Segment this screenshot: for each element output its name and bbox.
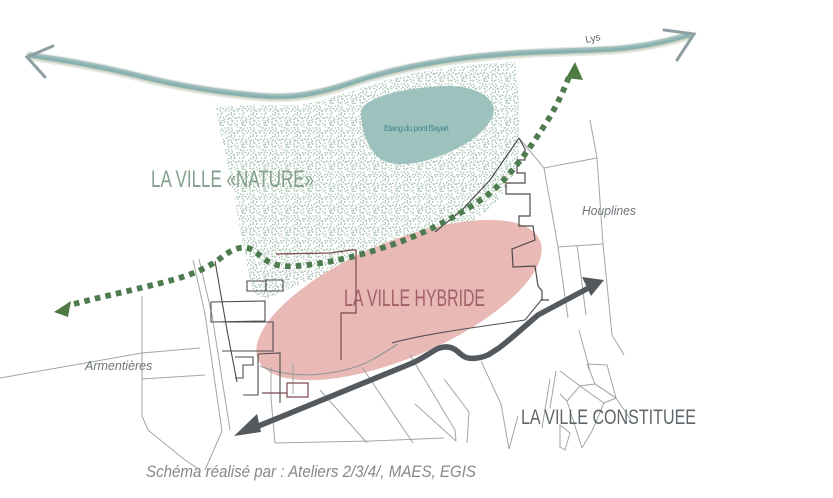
svg-text:LA VILLE «NATURE»: LA VILLE «NATURE»: [151, 166, 314, 193]
svg-text:LA VILLE HYBRIDE: LA VILLE HYBRIDE: [344, 285, 485, 312]
svg-text:Etang du pont Bayart: Etang du pont Bayart: [384, 123, 450, 133]
svg-text:LA VILLE CONSTITUEE: LA VILLE CONSTITUEE: [521, 406, 696, 429]
svg-text:Schéma réalisé par : Ateliers: Schéma réalisé par : Ateliers 2/3/4/, MA…: [146, 463, 476, 481]
svg-text:Houplines: Houplines: [582, 203, 636, 218]
svg-text:Armentières: Armentières: [84, 359, 152, 373]
